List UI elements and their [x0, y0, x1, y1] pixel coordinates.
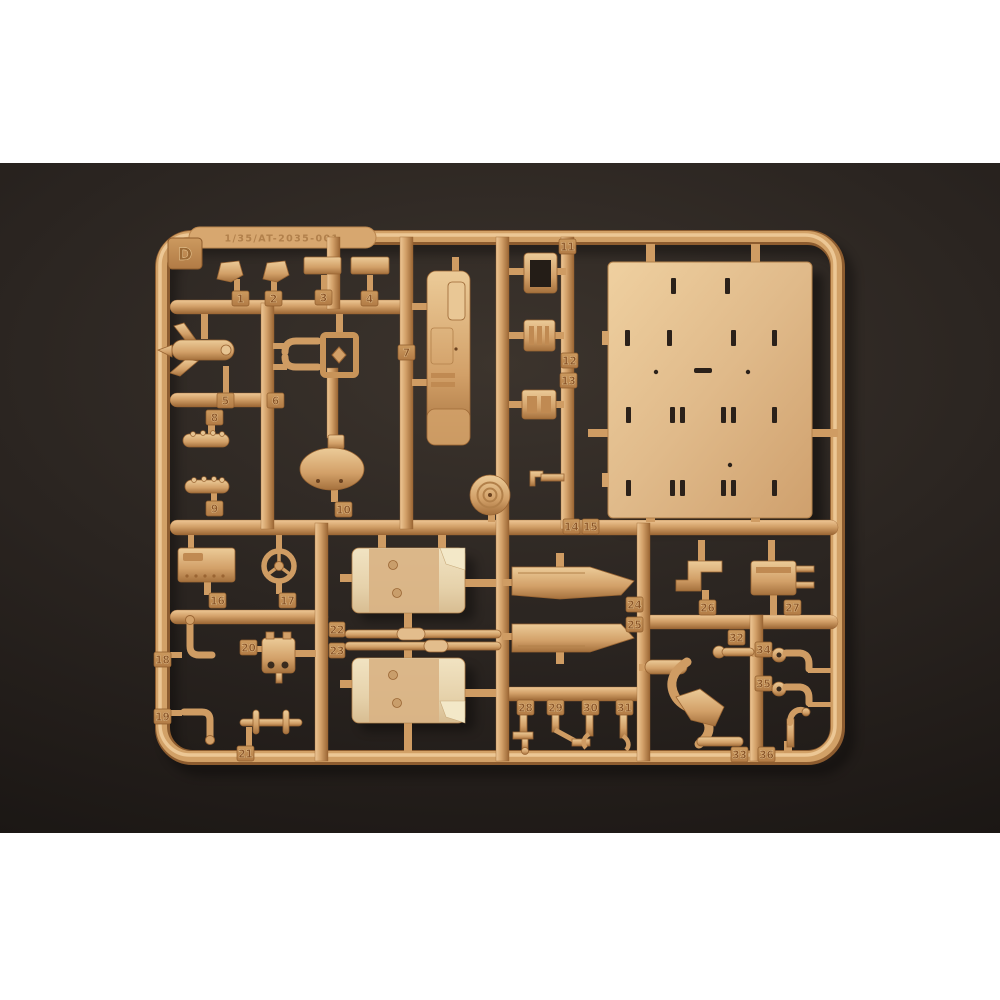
svg-text:23: 23: [330, 646, 345, 658]
part-9-leaf-spring: [185, 477, 229, 493]
part-16-dash-plate: [178, 548, 235, 582]
part-tag-19: 19: [154, 709, 171, 724]
part-17-steering-wheel: [264, 551, 294, 581]
part-1-mirror: [217, 261, 243, 282]
part-8-leaf-spring: [183, 431, 229, 447]
svg-text:34: 34: [756, 645, 771, 657]
part-28-lever: [513, 714, 533, 755]
part-tag-14: 14: [563, 519, 580, 534]
svg-text:25: 25: [627, 620, 642, 632]
part-12-box: [524, 320, 555, 351]
part-tag-16: 16: [209, 593, 226, 608]
part-panel: [602, 262, 812, 518]
svg-text:22: 22: [330, 625, 345, 637]
svg-text:6: 6: [272, 396, 279, 408]
part-tag-3: 3: [315, 290, 332, 305]
svg-text:18: 18: [155, 655, 170, 667]
part-tag-10: 10: [335, 502, 352, 517]
part-32-ball-rod: [713, 646, 754, 658]
svg-text:11: 11: [560, 242, 575, 254]
part-14-bracket: [530, 471, 564, 486]
svg-text:17: 17: [280, 596, 295, 608]
part-25-fender: [512, 624, 634, 652]
part-20-bracket-box: [262, 632, 295, 683]
svg-text:20: 20: [241, 643, 256, 655]
part-tag-22: 22: [329, 622, 345, 637]
part-tag-29: 29: [547, 700, 564, 715]
part-tag-36: 36: [758, 747, 775, 762]
part-7-hull-plate: [427, 271, 470, 445]
svg-text:15: 15: [583, 522, 598, 534]
part-36-pintle: [787, 708, 810, 747]
svg-text:14: 14: [564, 522, 579, 534]
svg-text:35: 35: [756, 679, 771, 691]
photo-page: 1/35/AT-2035-001 D: [0, 0, 1000, 1000]
svg-text:3: 3: [320, 293, 327, 305]
part-tag-35: 35: [755, 676, 772, 691]
svg-text:24: 24: [627, 600, 642, 612]
part-4-mirror: [351, 257, 389, 274]
part-tag-26: 26: [699, 600, 716, 615]
part-tag-24: 24: [626, 597, 643, 612]
part-tag-34: 34: [755, 642, 772, 657]
sprue-letter-tag: D: [168, 238, 202, 269]
part-34-hook: [772, 648, 809, 669]
part-33-exhaust-pipe: [645, 660, 743, 746]
part-tag-18: 18: [154, 652, 171, 667]
embossed-code-text: 1/35/AT-2035-001: [224, 234, 339, 245]
part-tag-25: 25: [626, 617, 643, 632]
part-seat-lower: [352, 658, 465, 723]
part-tag-17: 17: [279, 593, 296, 608]
svg-text:21: 21: [238, 749, 253, 761]
part-tag-33: 33: [731, 747, 748, 762]
svg-text:16: 16: [210, 596, 225, 608]
part-tag-6: 6: [267, 393, 284, 408]
svg-text:28: 28: [518, 703, 533, 715]
part-tag-27: 27: [784, 600, 801, 615]
part-tag-2: 2: [265, 291, 282, 306]
svg-text:31: 31: [617, 703, 632, 715]
svg-text:19: 19: [155, 712, 170, 724]
svg-text:13: 13: [561, 376, 576, 388]
part-19-pipe: [184, 712, 215, 745]
sprue-letter-text: D: [178, 245, 192, 265]
svg-text:5: 5: [222, 396, 229, 408]
embossed-label-plate: 1/35/AT-2035-001: [189, 227, 376, 248]
svg-text:4: 4: [366, 294, 373, 306]
part-tag-31: 31: [616, 700, 633, 715]
svg-text:36: 36: [759, 750, 774, 762]
part-tag-23: 23: [329, 643, 345, 658]
part-10-shield: [300, 435, 364, 490]
svg-text:10: 10: [336, 505, 351, 517]
svg-text:1: 1: [237, 294, 244, 306]
part-27-bracket-box: [751, 561, 814, 595]
part-23-rod: [345, 640, 501, 652]
part-11-open-box: [524, 253, 557, 293]
part-22-rod: [345, 628, 501, 640]
part-tag-9: 9: [206, 501, 223, 516]
part-tag-11: 11: [559, 239, 576, 254]
sprue-d-photo: 1/35/AT-2035-001 D: [0, 163, 1000, 833]
part-13-box: [522, 390, 556, 419]
svg-text:30: 30: [583, 703, 598, 715]
part-3-mirror: [304, 257, 341, 274]
part-tag-13: 13: [560, 373, 577, 388]
svg-text:27: 27: [785, 603, 800, 615]
svg-text:8: 8: [211, 413, 218, 425]
part-tag-7: 7: [398, 345, 415, 360]
svg-text:29: 29: [548, 703, 563, 715]
part-tag-15: 15: [582, 519, 599, 534]
photo-backdrop: 1/35/AT-2035-001 D: [0, 163, 1000, 833]
svg-text:7: 7: [403, 348, 410, 360]
part-tag-28: 28: [517, 700, 534, 715]
part-tag-4: 4: [361, 291, 378, 306]
part-seat-upper: [352, 548, 465, 613]
svg-text:12: 12: [562, 356, 577, 368]
part-26-bracket: [676, 561, 722, 591]
part-31-lever: [620, 714, 628, 750]
part-2-mirror: [263, 261, 289, 282]
svg-text:32: 32: [729, 633, 744, 645]
part-tag-5: 5: [217, 393, 234, 408]
part-tag-21: 21: [237, 746, 254, 761]
part-35-hook: [772, 682, 809, 703]
part-24-fender: [512, 567, 634, 599]
part-tag-12: 12: [561, 353, 578, 368]
part-15-cable-reel: [470, 475, 510, 515]
svg-text:2: 2: [270, 294, 277, 306]
part-tag-8: 8: [206, 410, 223, 425]
part-tag-32: 32: [728, 630, 745, 645]
part-tag-30: 30: [582, 700, 599, 715]
part-6-piping-frame: [285, 335, 356, 375]
part-tag-1: 1: [232, 291, 249, 306]
svg-text:26: 26: [700, 603, 715, 615]
part-tag-20: 20: [240, 640, 257, 655]
svg-text:33: 33: [732, 750, 747, 762]
svg-text:9: 9: [211, 504, 218, 516]
